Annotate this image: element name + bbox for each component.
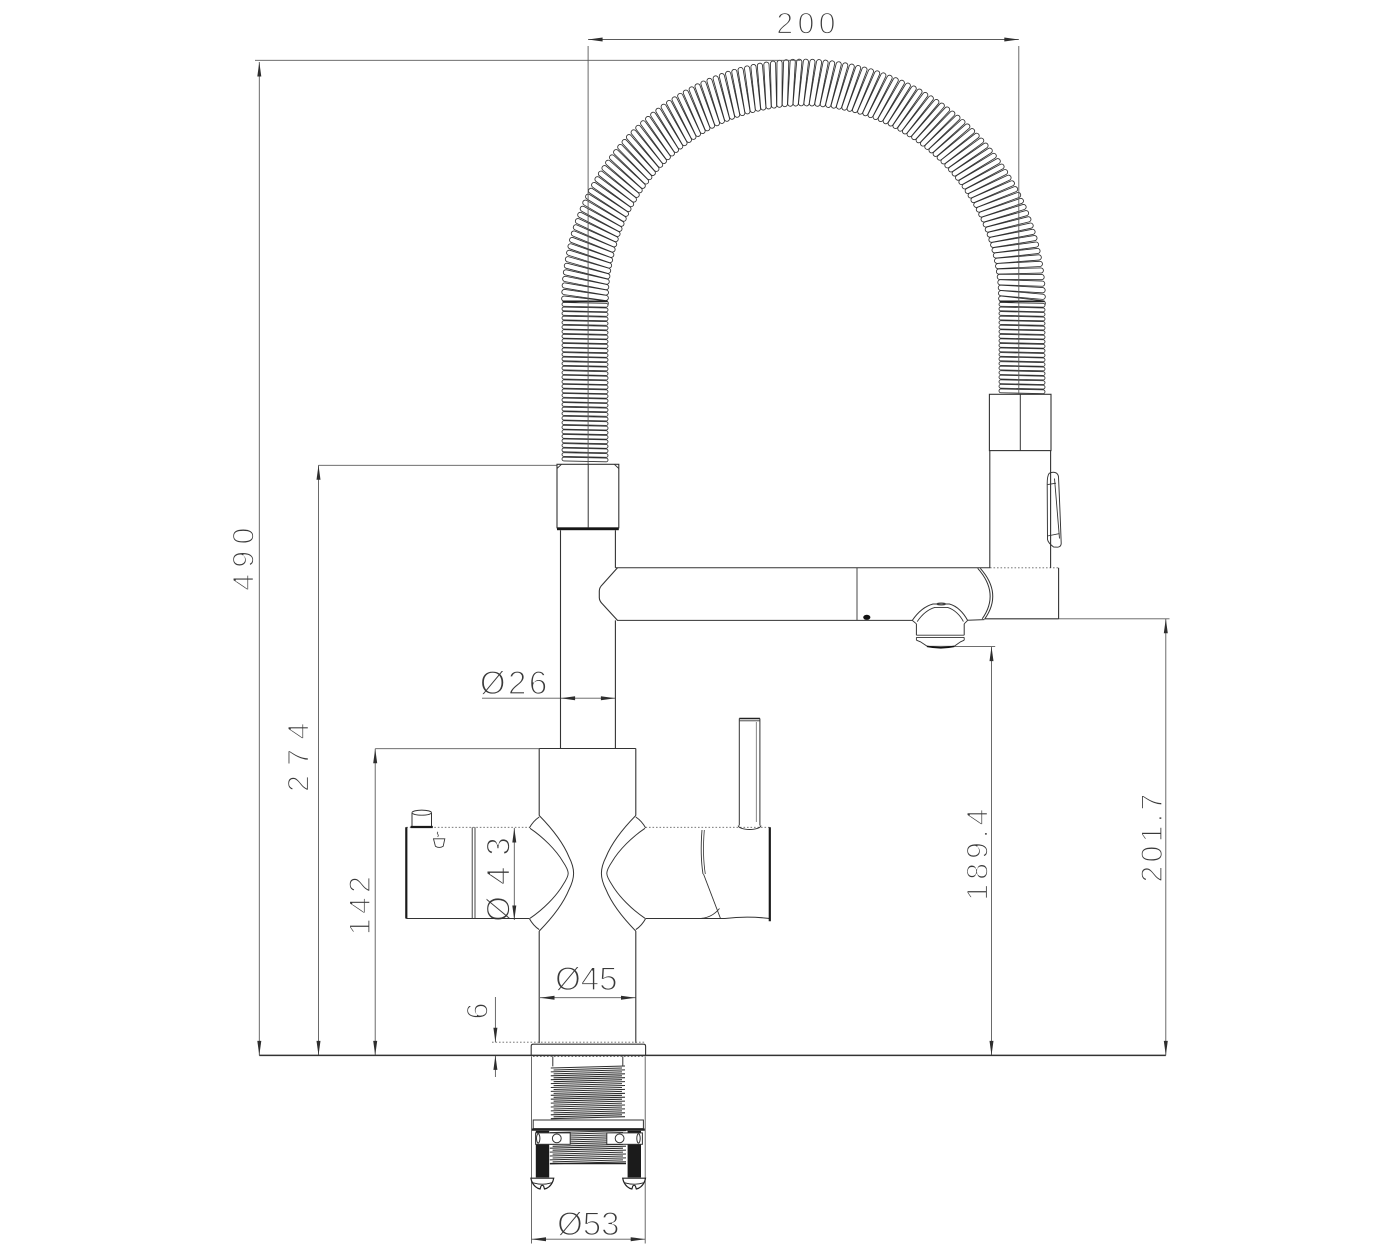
svg-text:Ø53: Ø53 xyxy=(557,1205,619,1242)
svg-text:201.7: 201.7 xyxy=(1136,790,1169,882)
svg-text:Ø43: Ø43 xyxy=(480,826,517,921)
svg-text:Ø26: Ø26 xyxy=(480,664,550,701)
svg-text:189.4: 189.4 xyxy=(962,805,995,901)
svg-text:6: 6 xyxy=(462,1003,495,1020)
svg-text:142: 142 xyxy=(344,872,377,936)
svg-text:274: 274 xyxy=(283,713,316,792)
svg-text:490: 490 xyxy=(228,521,261,591)
svg-text:Ø45: Ø45 xyxy=(555,960,617,997)
svg-text:200: 200 xyxy=(776,8,840,41)
